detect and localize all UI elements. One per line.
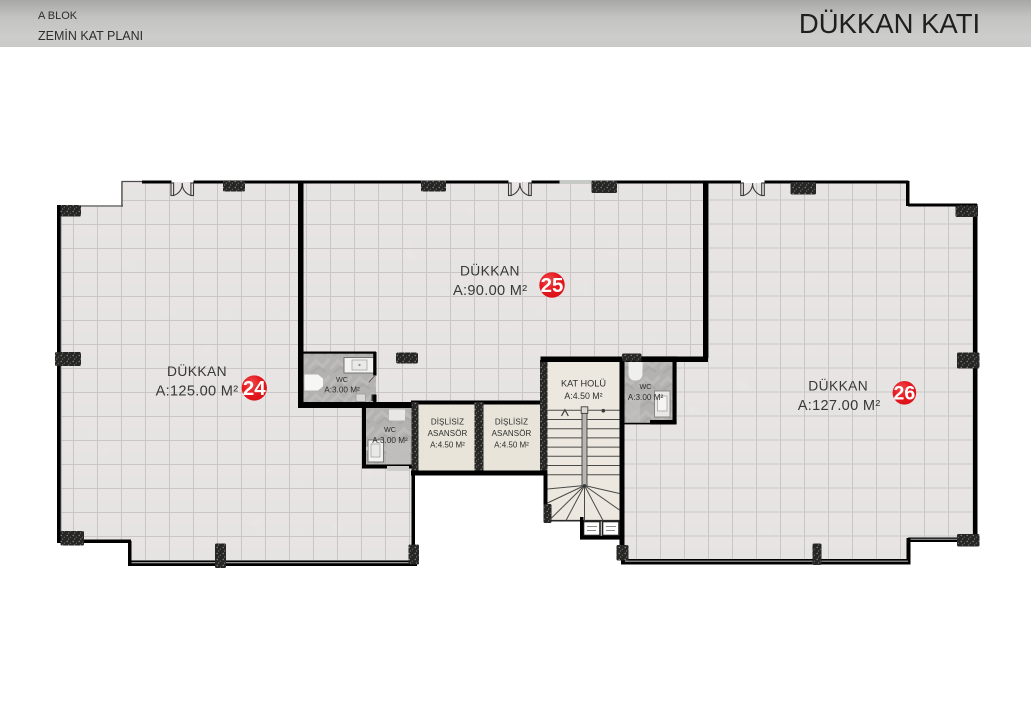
svg-text:DÜKKAN: DÜKKAN (167, 362, 227, 379)
svg-text:A:3.00 M²: A:3.00 M² (372, 436, 408, 445)
svg-text:A:4.50 M²: A:4.50 M² (494, 440, 529, 449)
svg-text:WC: WC (640, 382, 652, 391)
svg-text:DÜKKAN: DÜKKAN (460, 262, 520, 279)
svg-text:A:3.00 M²: A:3.00 M² (324, 385, 360, 394)
svg-text:A:3.00 M²: A:3.00 M² (628, 393, 664, 402)
svg-text:DÜKKAN KATI: DÜKKAN KATI (799, 8, 980, 39)
svg-text:DİŞLİSİZ: DİŞLİSİZ (431, 417, 464, 426)
svg-text:ZEMİN KAT PLANI: ZEMİN KAT PLANI (38, 29, 143, 43)
svg-text:ASANSÖR: ASANSÖR (492, 429, 532, 438)
svg-text:WC: WC (384, 425, 396, 434)
svg-text:DÜKKAN: DÜKKAN (808, 376, 868, 393)
svg-text:25: 25 (541, 274, 564, 297)
svg-text:A:90.00 M²: A:90.00 M² (453, 283, 527, 299)
svg-text:26: 26 (894, 383, 916, 405)
svg-text:KAT HOLÜ: KAT HOLÜ (561, 379, 606, 389)
svg-text:24: 24 (243, 377, 266, 400)
svg-text:A:4.50 M²: A:4.50 M² (430, 440, 465, 449)
svg-text:ASANSÖR: ASANSÖR (428, 429, 468, 438)
svg-text:A BLOK: A BLOK (38, 10, 78, 22)
svg-text:WC: WC (336, 375, 348, 384)
svg-text:DİŞLİSİZ: DİŞLİSİZ (495, 417, 528, 426)
svg-text:A:4.50 M²: A:4.50 M² (564, 391, 602, 401)
svg-text:A:125.00 M²: A:125.00 M² (156, 383, 239, 399)
svg-text:A:127.00 M²: A:127.00 M² (798, 398, 881, 414)
